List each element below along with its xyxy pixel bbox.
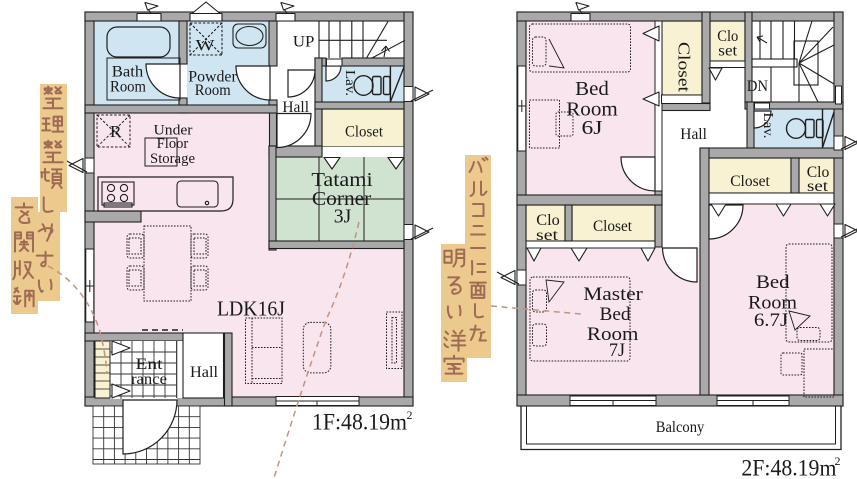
svg-text:1F:48.19m: 1F:48.19m	[312, 410, 407, 435]
svg-text:3J: 3J	[334, 206, 352, 228]
svg-text:Floor: Floor	[157, 136, 189, 152]
svg-text:Closet: Closet	[730, 173, 770, 190]
svg-text:UP: UP	[293, 34, 315, 51]
svg-text:6.7J: 6.7J	[754, 310, 788, 331]
svg-text:Master: Master	[583, 284, 643, 305]
svg-text:set: set	[536, 227, 559, 244]
svg-text:Room: Room	[110, 79, 146, 96]
svg-text:Hall: Hall	[680, 126, 707, 143]
svg-text:Lav.: Lav.	[761, 113, 776, 139]
svg-text:Storage: Storage	[150, 151, 195, 167]
svg-text:6J: 6J	[582, 118, 603, 139]
svg-text:LDK16J: LDK16J	[217, 297, 285, 321]
svg-text:Room: Room	[195, 82, 231, 99]
svg-text:Lav.: Lav.	[343, 70, 358, 96]
svg-text:set: set	[807, 178, 829, 195]
svg-text:W: W	[196, 38, 216, 55]
svg-text:Hall: Hall	[282, 99, 309, 116]
svg-text:Balcony: Balcony	[656, 419, 705, 436]
svg-text:2F:48.19m: 2F:48.19m	[741, 456, 836, 479]
svg-text:set: set	[718, 43, 738, 60]
svg-text:Bed: Bed	[600, 304, 632, 325]
svg-text:DN: DN	[747, 78, 769, 95]
svg-text:Hall: Hall	[190, 364, 219, 381]
svg-text:Bed: Bed	[575, 79, 609, 100]
svg-text:7J: 7J	[609, 340, 625, 361]
svg-text:Bed: Bed	[756, 272, 790, 293]
svg-text:rance: rance	[131, 371, 167, 388]
svg-text:Closet: Closet	[593, 218, 633, 235]
svg-text:2: 2	[835, 454, 841, 468]
svg-text:Closet: Closet	[345, 124, 384, 141]
svg-text:2: 2	[407, 408, 413, 422]
svg-text:R: R	[110, 122, 122, 141]
svg-text:Closet: Closet	[675, 42, 694, 92]
